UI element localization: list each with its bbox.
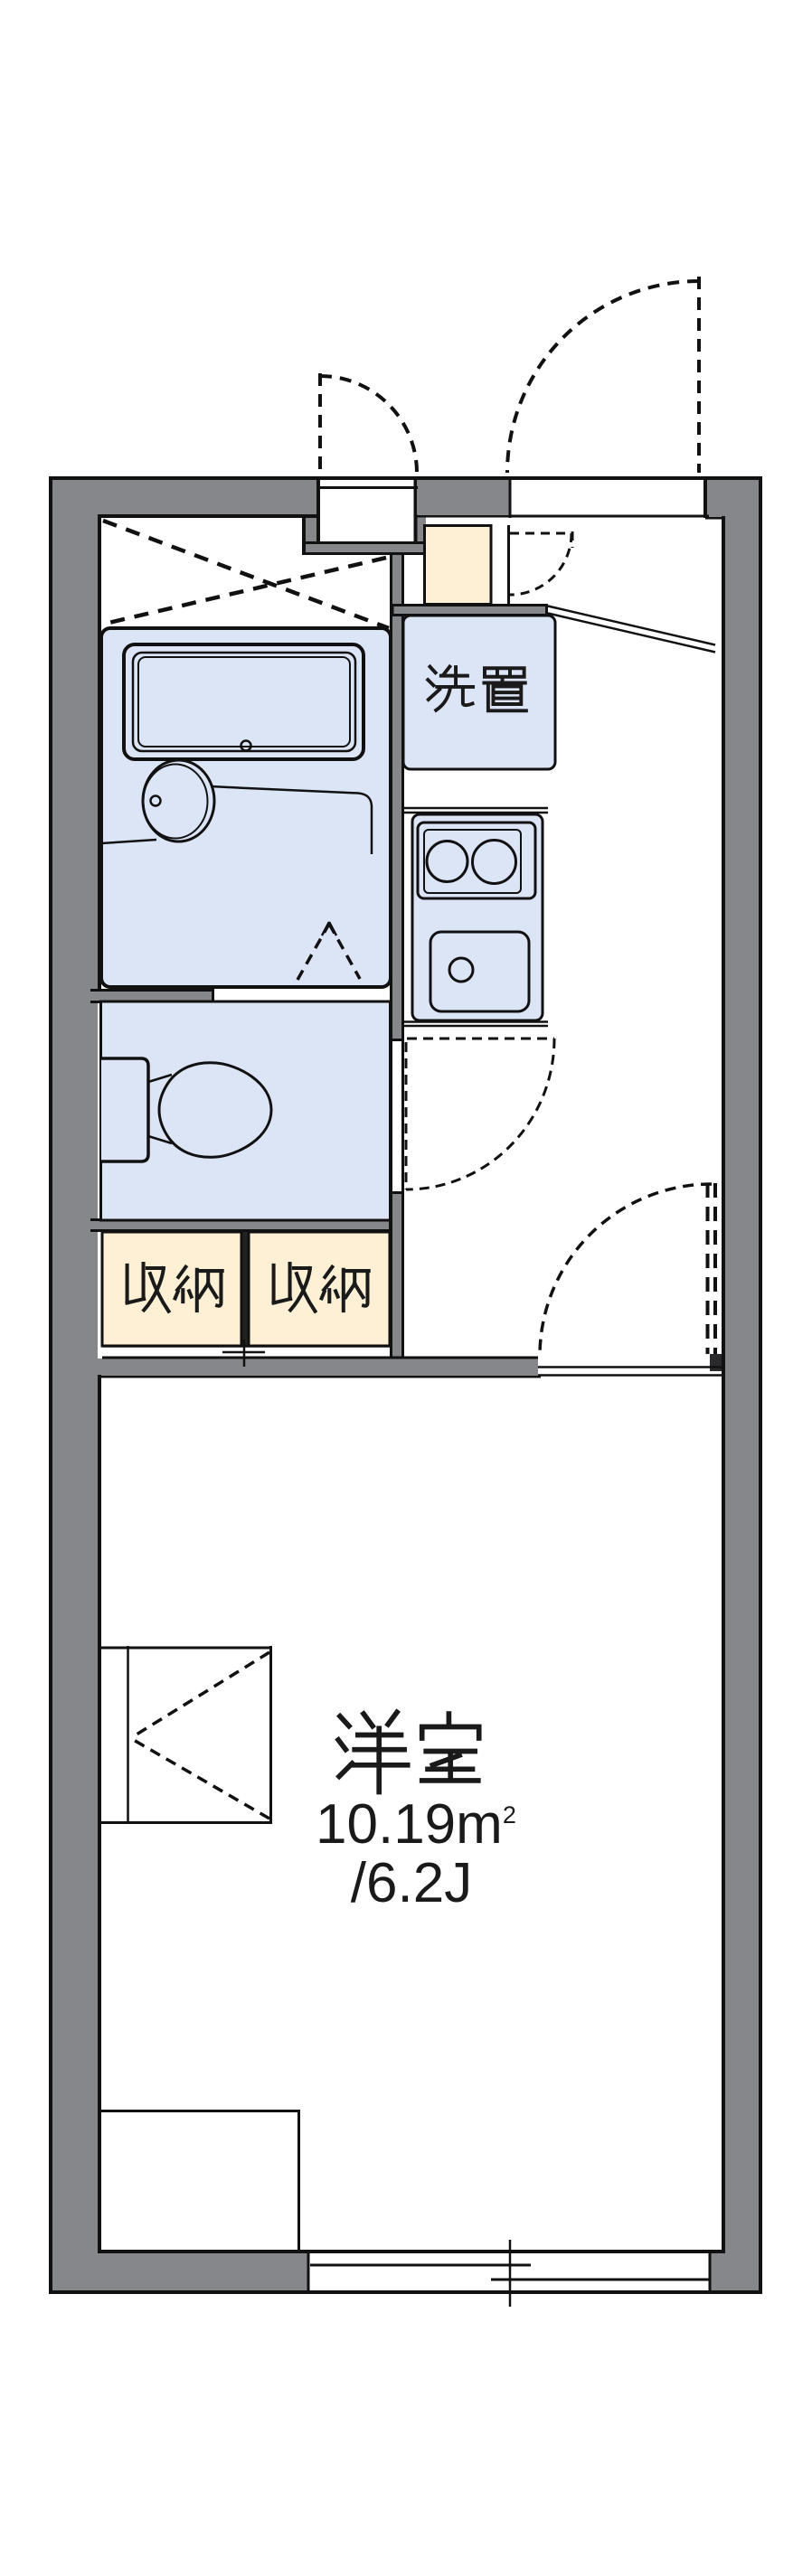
svg-text:10.19m2: 10.19m2 bbox=[316, 1793, 516, 1856]
svg-text:/6.2J: /6.2J bbox=[351, 1852, 472, 1914]
